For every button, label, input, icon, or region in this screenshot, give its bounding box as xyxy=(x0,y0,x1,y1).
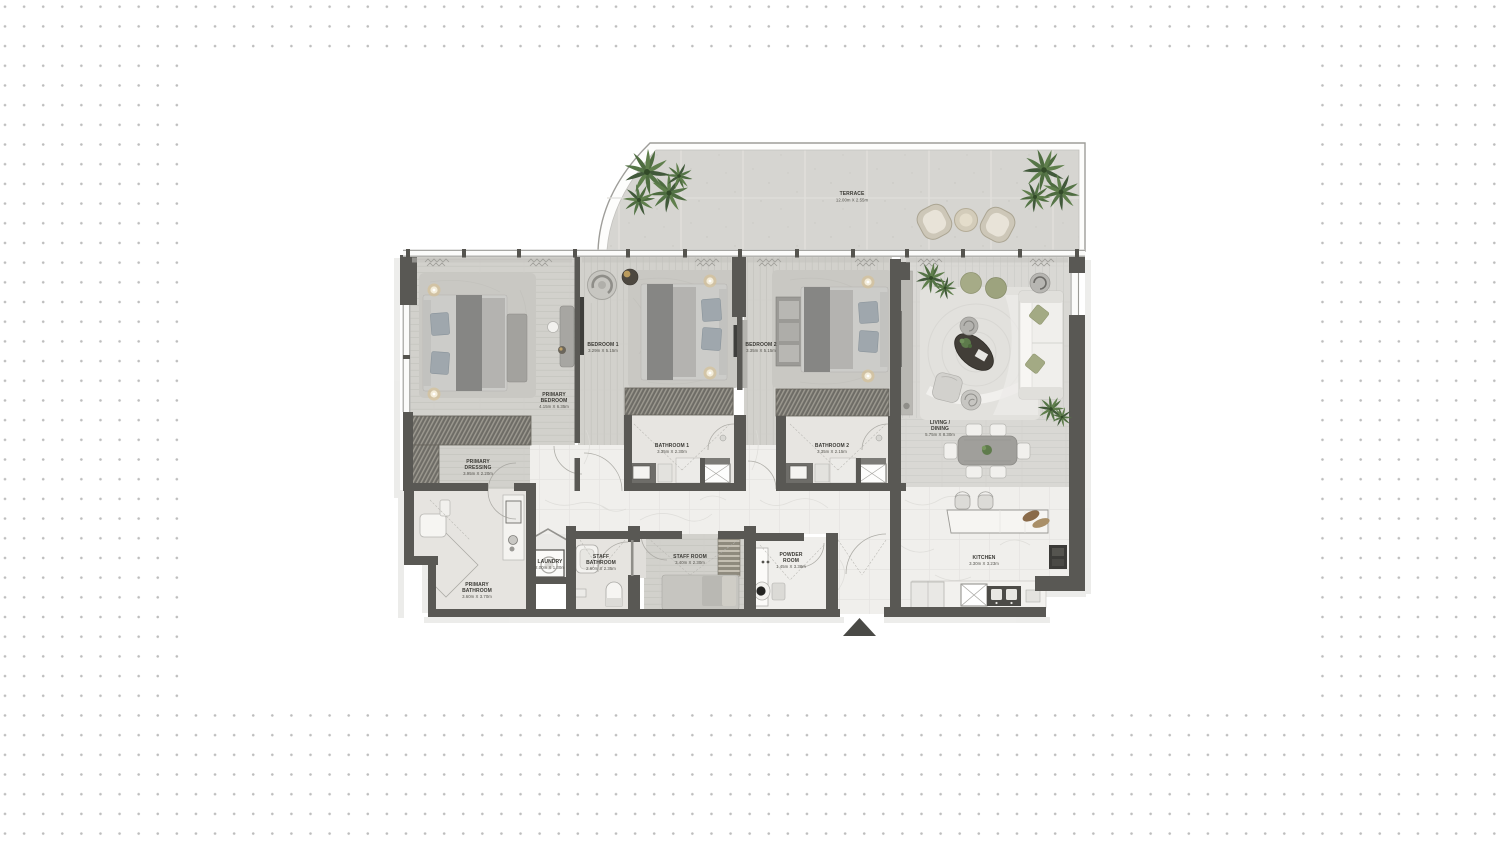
svg-text:3.29m X 5.15m: 3.29m X 5.15m xyxy=(588,348,618,353)
svg-text:TERRACE: TERRACE xyxy=(840,191,865,197)
svg-text:1.45m X 3.30m: 1.45m X 3.30m xyxy=(776,564,806,569)
svg-text:3.30m X 3.23m: 3.30m X 3.23m xyxy=(969,561,999,566)
svg-text:3.60m X 3.70m: 3.60m X 3.70m xyxy=(462,594,492,599)
svg-text:3.40m X 2.30m: 3.40m X 2.30m xyxy=(675,560,705,565)
svg-text:3.95m X 2.20m: 3.95m X 2.20m xyxy=(463,471,493,476)
svg-text:5.75m X 8.30m: 5.75m X 8.30m xyxy=(925,432,955,437)
svg-text:2.00m X 1.30m: 2.00m X 1.30m xyxy=(535,565,565,570)
svg-text:3.35m X 2.30m: 3.35m X 2.30m xyxy=(657,449,687,454)
svg-text:3.35m X 2.15m: 3.35m X 2.15m xyxy=(817,449,847,454)
svg-text:2.60m X 2.35m: 2.60m X 2.35m xyxy=(586,566,616,571)
svg-text:4.15m X 6.35m: 4.15m X 6.35m xyxy=(539,404,569,409)
svg-text:3.35m X 5.15m: 3.35m X 5.15m xyxy=(746,348,776,353)
svg-text:12.00m X 2.55m: 12.00m X 2.55m xyxy=(836,198,869,203)
